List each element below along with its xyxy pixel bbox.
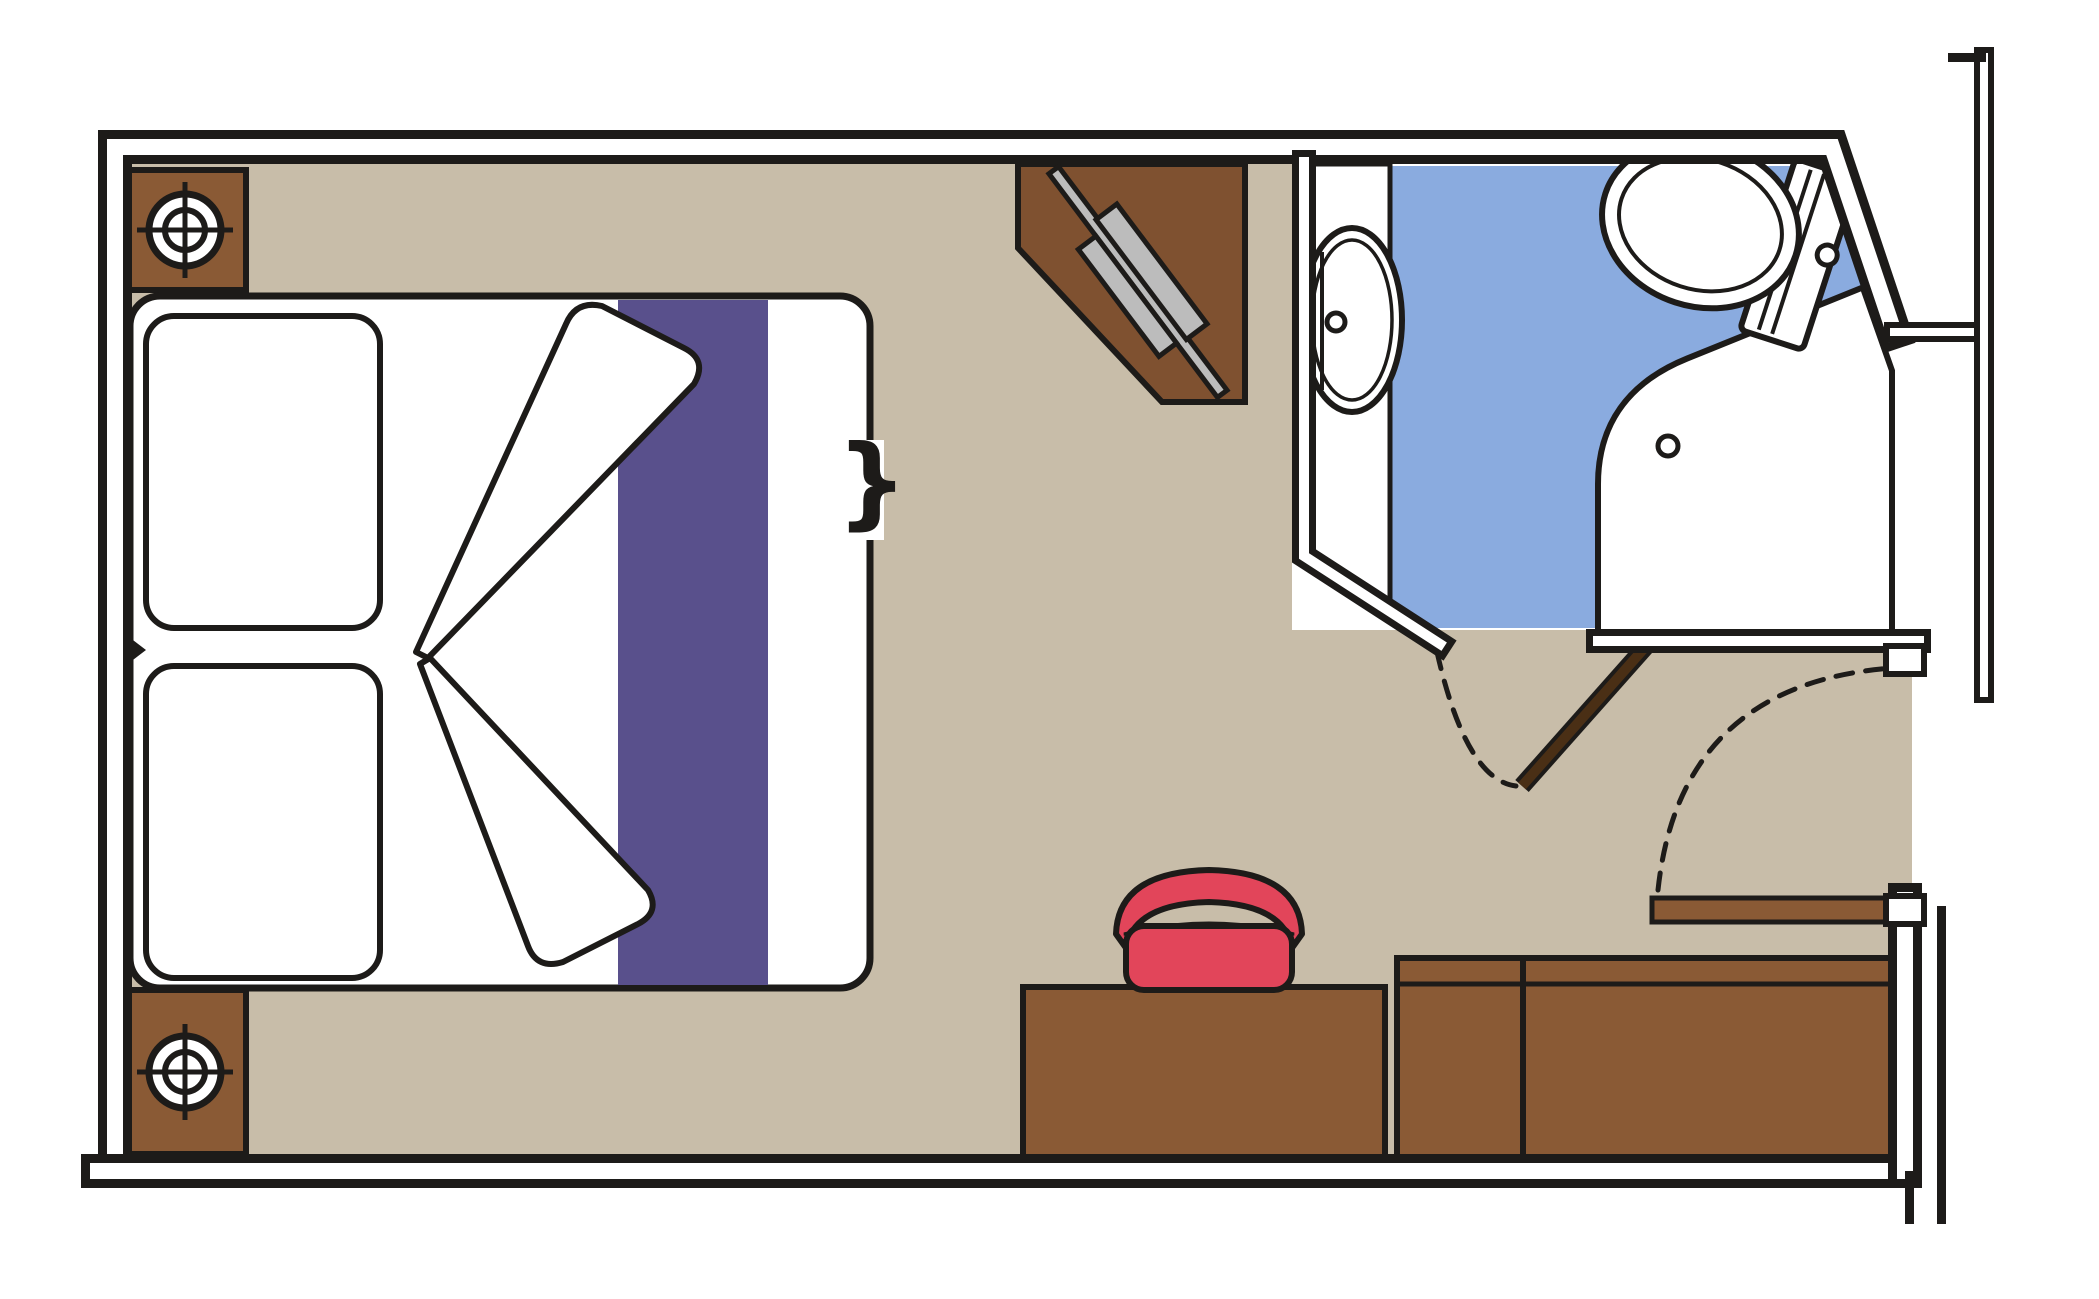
desk — [1023, 987, 1385, 1162]
wall-tail — [1905, 1171, 1914, 1224]
sink-icon — [1302, 228, 1402, 412]
nightstand-top — [124, 170, 246, 290]
entry-door-jamb-top — [1886, 646, 1924, 674]
entry-doorway-floor — [1884, 664, 1912, 902]
nightstand-bottom — [124, 990, 246, 1154]
floor-plan: } — [0, 0, 2099, 1299]
entry-door-jamb-bottom — [1886, 896, 1924, 924]
wall-tail — [1937, 906, 1946, 1224]
pillow-bottom — [146, 666, 380, 978]
hull-wall — [1948, 53, 1986, 693]
pillow-top — [146, 316, 380, 628]
wardrobe — [1397, 958, 1915, 1162]
bed: } — [125, 296, 908, 988]
shower-drain-icon — [1658, 436, 1678, 456]
floor-plan-page: } — [0, 0, 2099, 1299]
bed-split-bracket: } — [836, 423, 907, 540]
stool — [1116, 870, 1302, 990]
